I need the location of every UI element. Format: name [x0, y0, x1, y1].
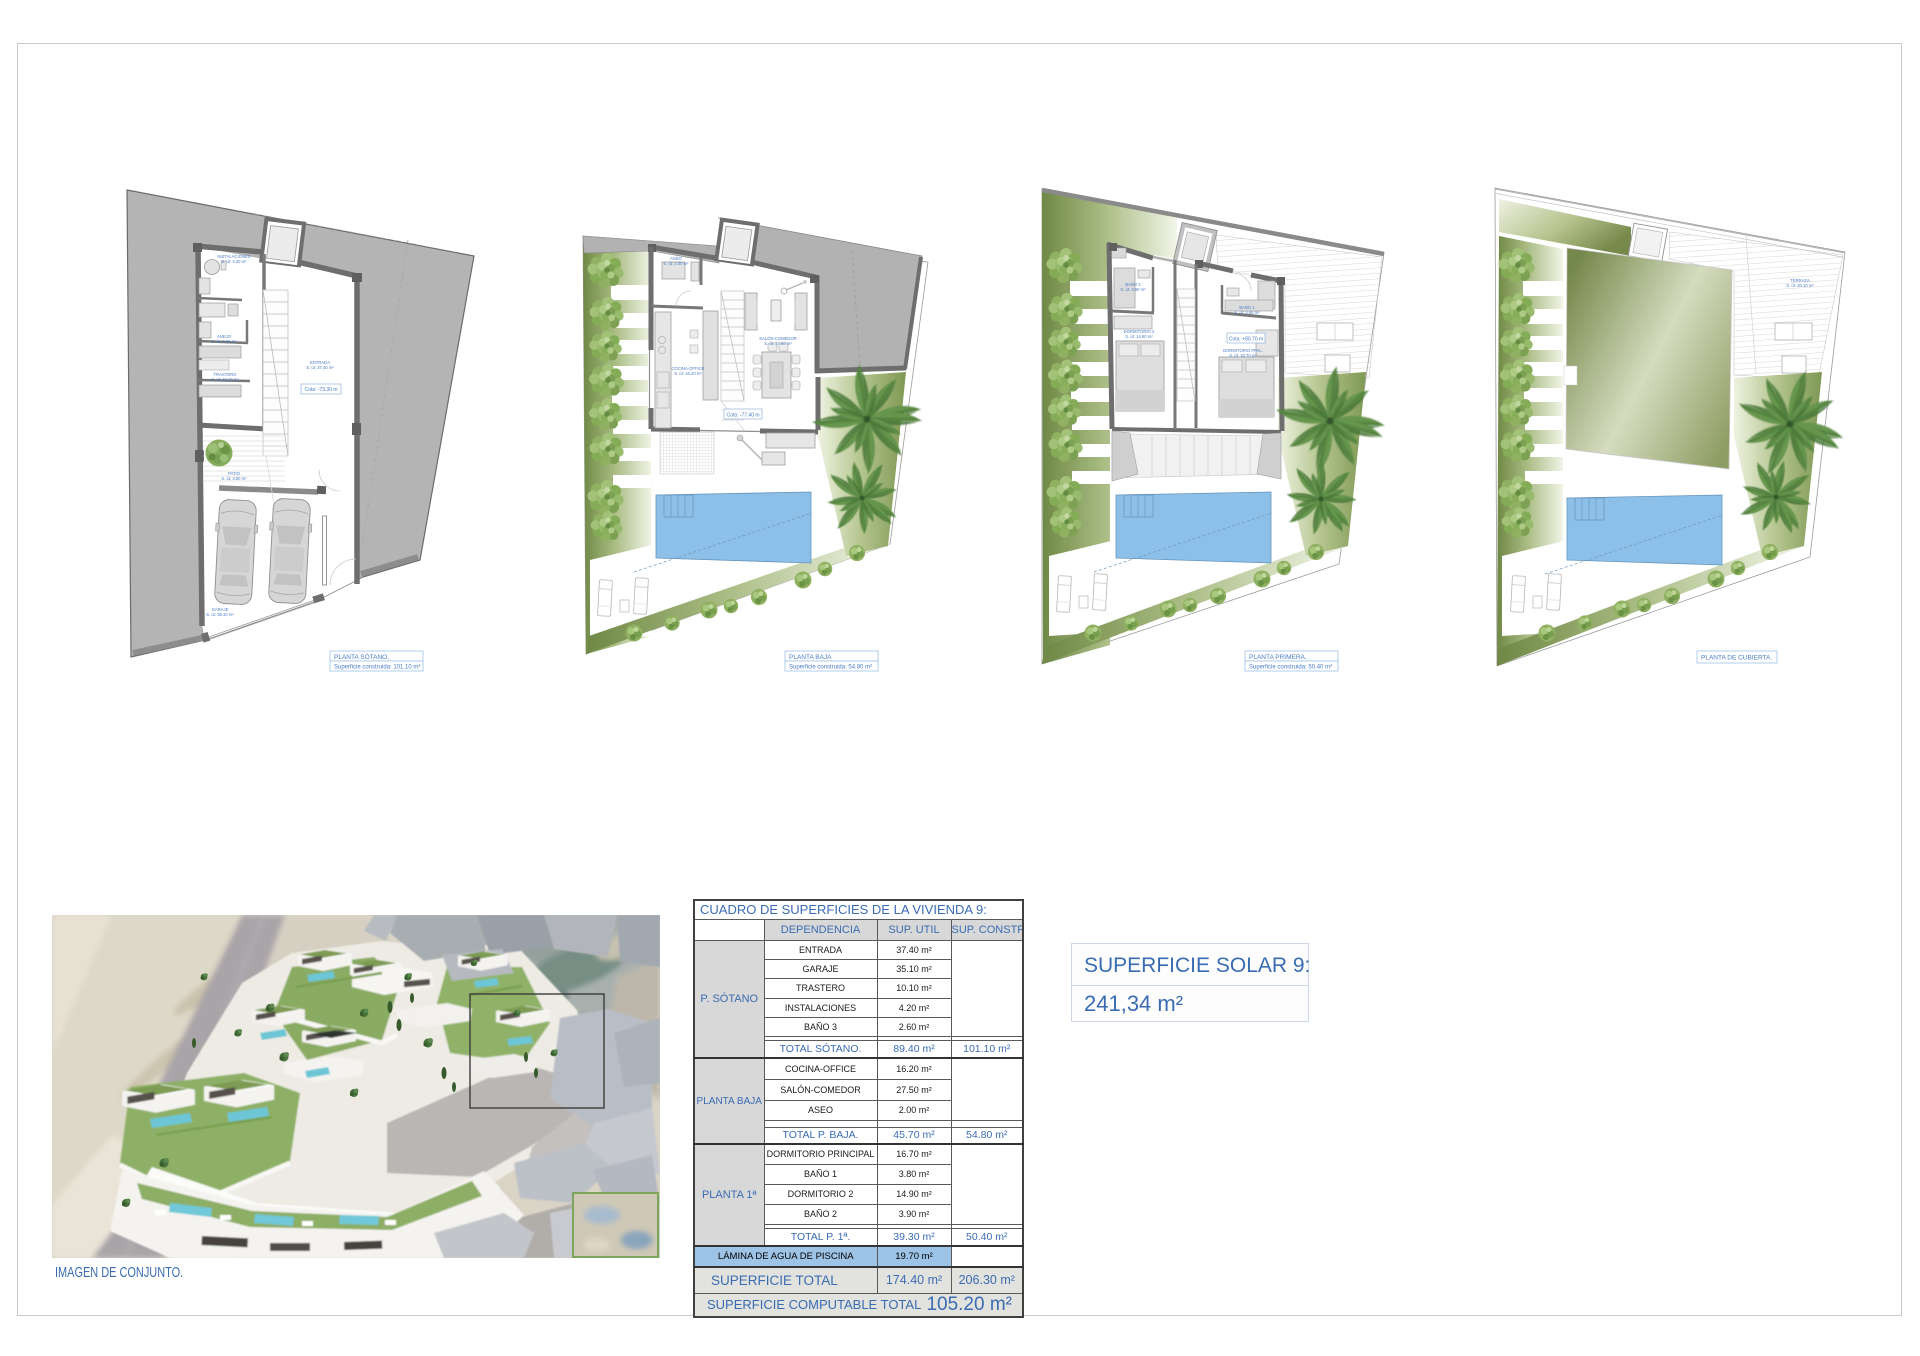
- svg-text:Superficie construida: 101.10: Superficie construida: 101.10 m²: [334, 665, 420, 671]
- svg-text:S. út: 2.60 m²: S. út: 2.60 m²: [211, 339, 237, 344]
- svg-text:PLANTA SÓTANO.: PLANTA SÓTANO.: [334, 652, 389, 661]
- svg-text:S. út: 3.80 m²: S. út: 3.80 m²: [1234, 310, 1260, 315]
- svg-text:S. út: 16.70 m²: S. út: 16.70 m²: [1229, 353, 1257, 358]
- svg-text:S. út: 27.50 m²: S. út: 27.50 m²: [764, 341, 792, 346]
- svg-text:Cota: -73.30 m: Cota: -73.30 m: [304, 387, 337, 393]
- svg-text:S. út: 4.20 m²: S. út: 4.20 m²: [221, 259, 247, 264]
- svg-text:PLANTA PRIMERA.: PLANTA PRIMERA.: [1249, 654, 1307, 661]
- svg-text:Cota: +80.70 m: Cota: +80.70 m: [1229, 337, 1263, 343]
- svg-text:S. út: 14.90 m²: S. út: 14.90 m²: [1125, 334, 1153, 339]
- svg-text:S. út: 20.10 m²: S. út: 20.10 m²: [1786, 283, 1814, 288]
- svg-text:S. út: 3.90 m²: S. út: 3.90 m²: [1120, 287, 1146, 292]
- svg-text:S. út: 10.10 m²: S. út: 10.10 m²: [211, 377, 239, 382]
- svg-text:PLANTA BAJA: PLANTA BAJA: [789, 654, 832, 661]
- svg-text:S. út: 2.00 m²: S. út: 2.00 m²: [663, 261, 689, 266]
- svg-text:S. út: 16.20 m²: S. út: 16.20 m²: [674, 371, 702, 376]
- svg-text:S. út: 35.10 m²: S. út: 35.10 m²: [206, 612, 234, 617]
- svg-text:Superficie construida: 54.80 m: Superficie construida: 54.80 m²: [789, 665, 872, 671]
- svg-text:Superficie construida: 50.40 m: Superficie construida: 50.40 m²: [1249, 665, 1332, 671]
- svg-text:PLANTA DE CUBIERTA.: PLANTA DE CUBIERTA.: [1701, 655, 1772, 662]
- svg-text:Cota: -77.40 m: Cota: -77.40 m: [726, 413, 759, 419]
- svg-text:S. út: 37.40 m²: S. út: 37.40 m²: [306, 365, 334, 370]
- svg-text:S. út: 3.80 m²: S. út: 3.80 m²: [221, 476, 247, 481]
